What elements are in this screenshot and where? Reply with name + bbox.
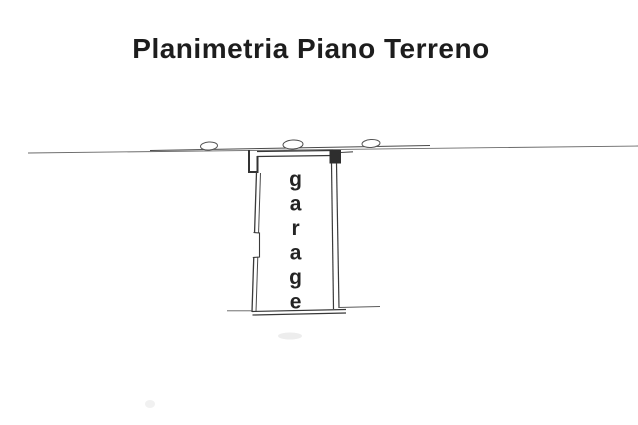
- garage-room-label: garage: [284, 168, 306, 315]
- topright-wall-tick: [341, 152, 353, 153]
- garage-topright-stub: [330, 150, 342, 164]
- scan-artifact: [278, 333, 302, 340]
- garage-right-wall-outer: [337, 163, 340, 308]
- bottom-right-extension-line: [339, 307, 380, 308]
- garage-top-wall: [257, 151, 333, 157]
- garage-topleft-step-wall: [249, 150, 258, 172]
- garage-right-wall-inner: [332, 163, 334, 309]
- floor-plan-drawing: [0, 0, 638, 425]
- scan-artifact: [145, 400, 155, 408]
- left-wall-pilaster: [253, 233, 260, 258]
- floor-plan-page: Planimetria Piano Terreno gar: [0, 0, 638, 425]
